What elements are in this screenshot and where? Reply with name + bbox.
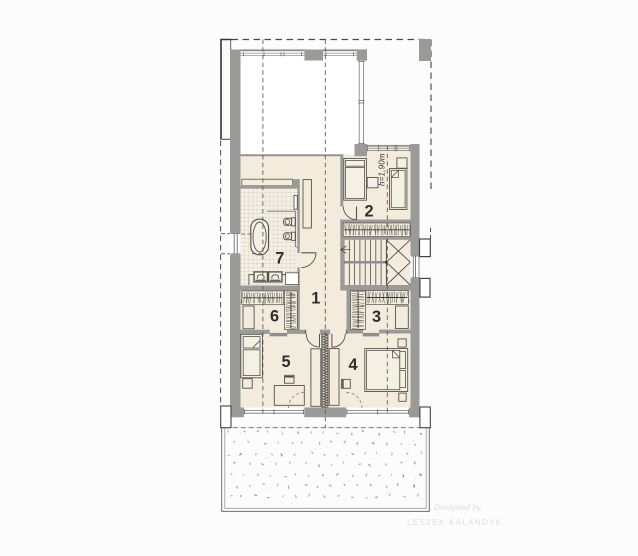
svg-text:h=1,90m: h=1,90m: [378, 153, 387, 186]
svg-text:4: 4: [348, 356, 357, 374]
svg-text:2: 2: [364, 203, 373, 221]
svg-text:5: 5: [281, 353, 290, 371]
svg-text:3: 3: [372, 308, 381, 326]
svg-text:7: 7: [275, 250, 284, 268]
svg-text:LESZEK KALANDYK: LESZEK KALANDYK: [407, 518, 502, 527]
svg-text:Designed by: Designed by: [434, 502, 482, 512]
svg-text:6: 6: [270, 308, 279, 326]
svg-text:1: 1: [311, 289, 320, 307]
